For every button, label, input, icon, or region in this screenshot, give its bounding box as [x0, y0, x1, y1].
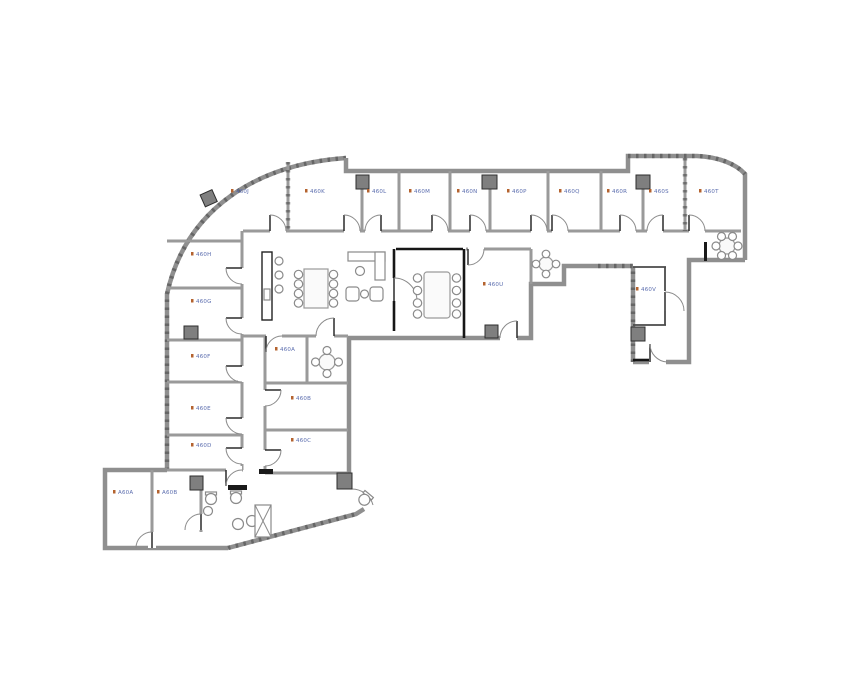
svg-text:460P: 460P: [512, 189, 527, 195]
room-label: 460D: [191, 443, 212, 449]
stool: [275, 285, 283, 293]
svg-text:460M: 460M: [414, 189, 430, 195]
coffee-table: [356, 267, 365, 276]
room-label: 460Q: [559, 189, 580, 195]
room-label: 460F: [191, 354, 210, 360]
svg-text:460U: 460U: [488, 282, 503, 288]
room-label: 460G: [191, 299, 212, 305]
break-nook-table: [312, 347, 343, 378]
conference-room-table: [413, 272, 460, 318]
stool: [275, 257, 283, 265]
room-label: 460L: [367, 189, 387, 195]
guest-chair: [233, 519, 244, 530]
floor-plan-svg: 460J 460K 460L 460M 460N 460P 460Q 460R …: [0, 0, 855, 678]
lounge-chair: [346, 287, 359, 301]
room-label: 460N: [457, 189, 477, 195]
svg-text:460C: 460C: [296, 438, 311, 444]
side-table: [361, 290, 369, 298]
lounge-sofa: [346, 252, 385, 301]
svg-text:A60A: A60A: [118, 490, 133, 496]
reception-desk: [228, 485, 247, 490]
reception-area: [204, 485, 374, 530]
corridor-round-table: [532, 250, 560, 278]
room-label: 460R: [607, 189, 627, 195]
kitchen-counter: [262, 252, 283, 320]
room-label: 460U: [483, 282, 503, 288]
svg-text:460R: 460R: [612, 189, 627, 195]
svg-text:460A: 460A: [280, 347, 295, 353]
open-area-table: [294, 269, 337, 308]
svg-text:460G: 460G: [196, 299, 212, 305]
svg-text:460V: 460V: [641, 287, 656, 293]
office-chair: [206, 494, 217, 505]
svg-text:460L: 460L: [372, 189, 387, 195]
svg-text:460K: 460K: [310, 189, 325, 195]
room-label: A60A: [113, 490, 133, 496]
sink: [264, 289, 270, 300]
svg-text:460Q: 460Q: [564, 189, 580, 195]
room-label: 460B: [291, 396, 311, 402]
building-columns: [184, 175, 650, 490]
corridor-door-leaf: [704, 242, 707, 261]
lounge-chair: [370, 287, 383, 301]
svg-text:460H: 460H: [196, 252, 211, 258]
room-label: 460H: [191, 252, 211, 258]
room-label: 460A: [275, 347, 295, 353]
room-label: 460C: [291, 438, 311, 444]
svg-text:460S: 460S: [654, 189, 669, 195]
room-label: 460E: [191, 406, 211, 412]
elevator-shaft: [255, 505, 271, 537]
room-label: 460T: [699, 189, 719, 195]
side-table: [204, 507, 213, 516]
room-label: 460S: [649, 189, 669, 195]
svg-text:A60B: A60B: [162, 490, 177, 496]
room-label: 460M: [409, 189, 430, 195]
svg-text:460F: 460F: [196, 354, 210, 360]
svg-text:460D: 460D: [196, 443, 212, 449]
room-label: 460K: [305, 189, 325, 195]
stool: [275, 271, 283, 279]
room-labels: 460J 460K 460L 460M 460N 460P 460Q 460R …: [113, 189, 719, 496]
svg-text:460B: 460B: [296, 396, 311, 402]
svg-text:460J: 460J: [236, 189, 249, 195]
svg-text:460N: 460N: [462, 189, 477, 195]
room-label: 460P: [507, 189, 527, 195]
office-chair: [231, 493, 242, 504]
room-label: 460V: [636, 287, 656, 293]
floor-plan-page: 460J 460K 460L 460M 460N 460P 460Q 460R …: [0, 0, 855, 678]
svg-text:460E: 460E: [196, 406, 211, 412]
svg-text:460T: 460T: [704, 189, 719, 195]
lobby-threshold: [259, 469, 273, 474]
room-label: A60B: [157, 490, 177, 496]
east-round-table: [712, 233, 742, 260]
